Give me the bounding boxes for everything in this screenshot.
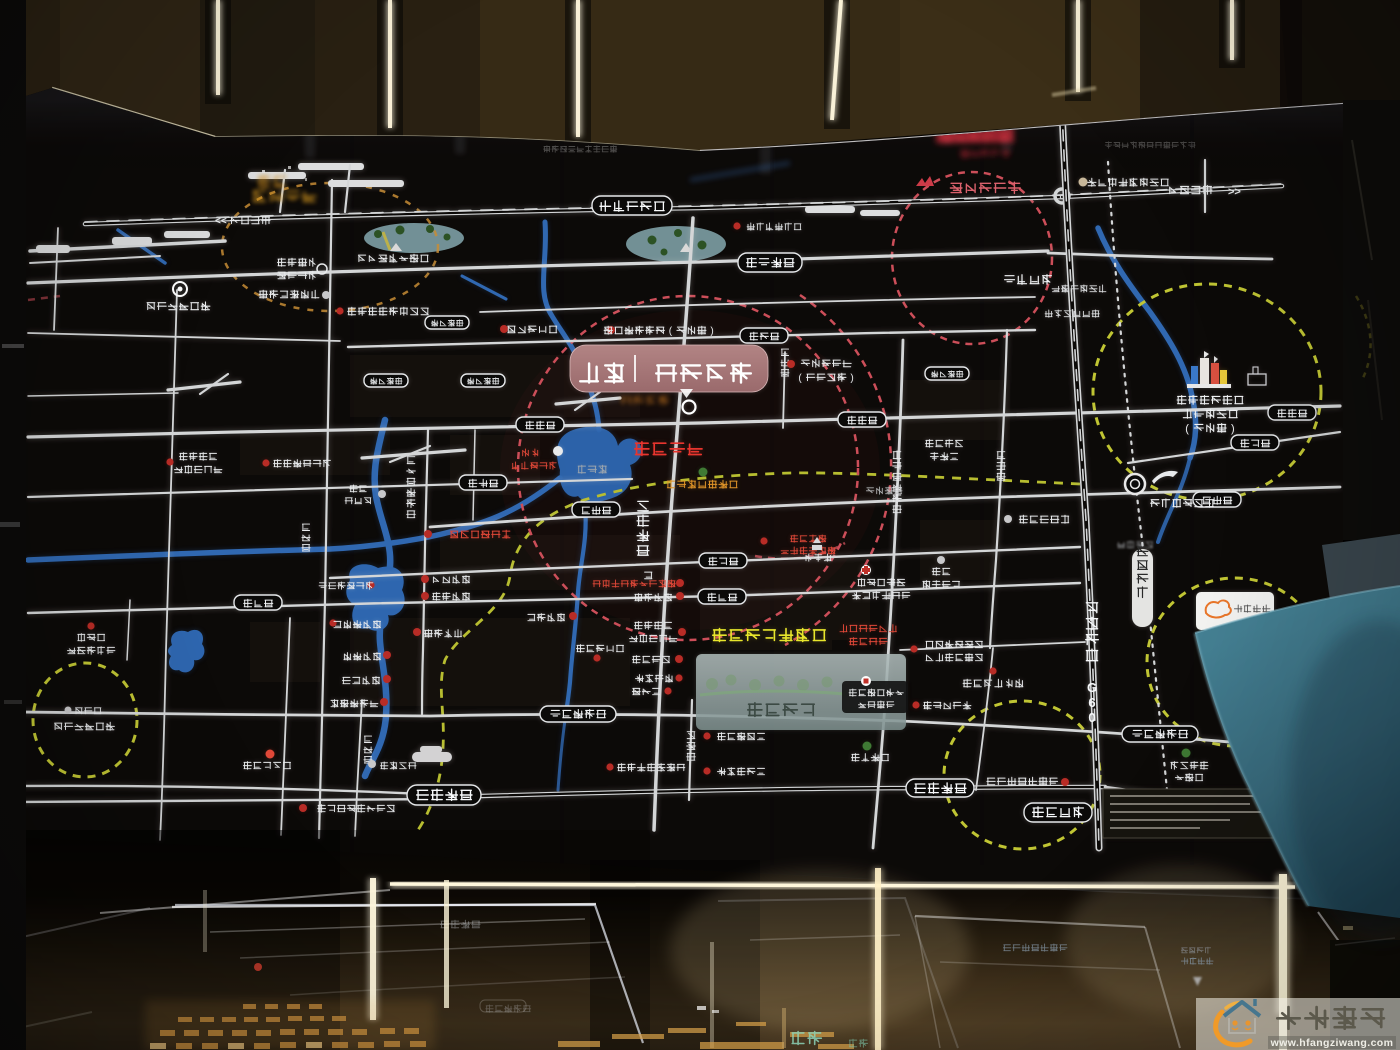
svg-text:www.hfangziwang.com: www.hfangziwang.com <box>1270 1037 1394 1049</box>
